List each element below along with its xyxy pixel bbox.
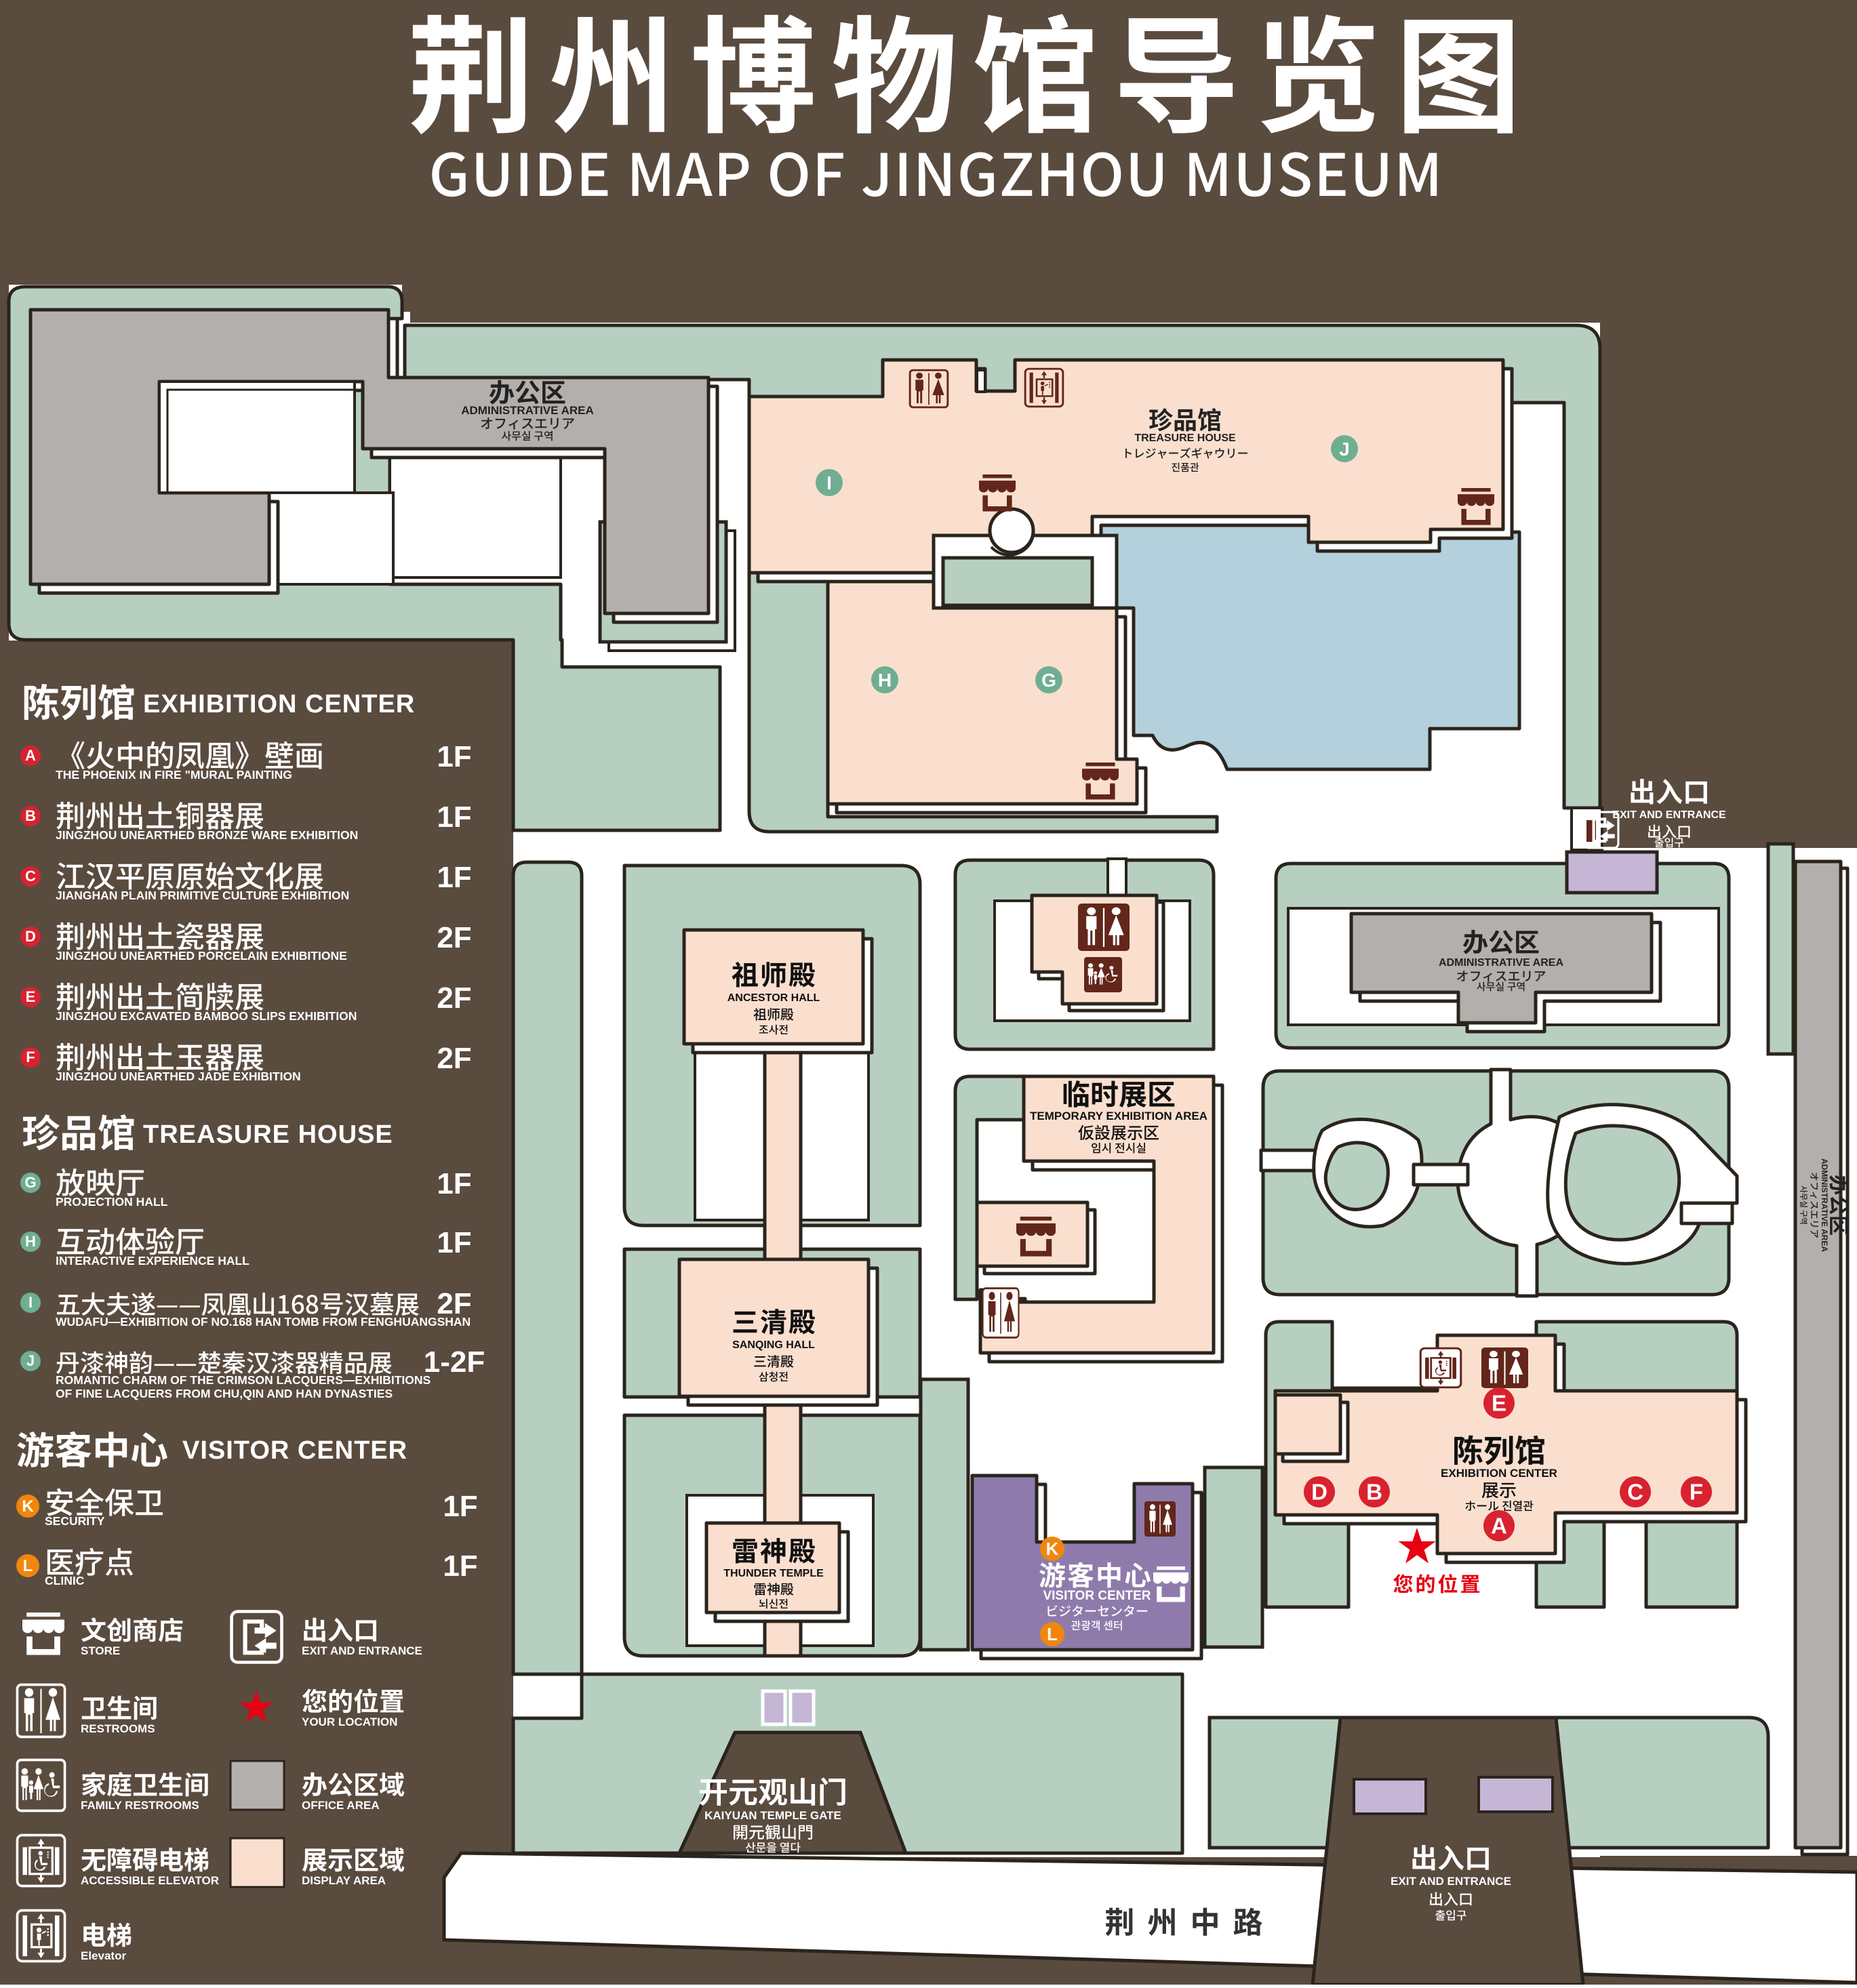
svg-text:1F: 1F bbox=[437, 861, 471, 894]
svg-text:VISITOR CENTER: VISITOR CENTER bbox=[182, 1436, 407, 1465]
svg-text:F: F bbox=[26, 1049, 35, 1066]
svg-text:F: F bbox=[1690, 1480, 1703, 1505]
svg-text:1F: 1F bbox=[437, 1226, 471, 1259]
svg-text:ADMINISTRATIVE AREA: ADMINISTRATIVE AREA bbox=[1820, 1158, 1829, 1252]
svg-text:JINGZHOU UNEARTHED JADE EXHIBI: JINGZHOU UNEARTHED JADE EXHIBITION bbox=[56, 1070, 301, 1083]
svg-text:H: H bbox=[25, 1233, 36, 1250]
svg-text:FAMILY RESTROOMS: FAMILY RESTROOMS bbox=[81, 1799, 199, 1812]
svg-text:THE PHOENIX IN FIRE "MURAL PAI: THE PHOENIX IN FIRE "MURAL PAINTING bbox=[56, 768, 292, 782]
svg-text:ACCESSIBLE ELEVATOR: ACCESSIBLE ELEVATOR bbox=[81, 1874, 219, 1887]
svg-text:SECURITY: SECURITY bbox=[45, 1514, 105, 1528]
svg-text:L: L bbox=[23, 1557, 33, 1575]
svg-text:A: A bbox=[1491, 1514, 1507, 1539]
svg-text:K: K bbox=[22, 1497, 34, 1516]
svg-text:2F: 2F bbox=[437, 1287, 471, 1320]
svg-text:ROMANTIC CHARM OF THE CRIMSON: ROMANTIC CHARM OF THE CRIMSON LACQUERS—E… bbox=[56, 1373, 431, 1387]
svg-text:J: J bbox=[1339, 439, 1350, 460]
svg-text:L: L bbox=[1047, 1624, 1058, 1644]
svg-text:YOUR LOCATION: YOUR LOCATION bbox=[302, 1716, 397, 1728]
svg-text:G: G bbox=[1041, 670, 1056, 691]
svg-text:B: B bbox=[1366, 1480, 1382, 1505]
svg-text:Elevator: Elevator bbox=[81, 1949, 126, 1962]
svg-text:EXIT AND ENTRANCE: EXIT AND ENTRANCE bbox=[1612, 809, 1726, 821]
svg-text:VISITOR CENTER: VISITOR CENTER bbox=[1043, 1589, 1151, 1603]
svg-text:H: H bbox=[878, 670, 892, 691]
svg-text:SANQING HALL: SANQING HALL bbox=[732, 1339, 815, 1351]
svg-text:I: I bbox=[826, 472, 832, 493]
svg-text:ADMINISTRATIVE AREA: ADMINISTRATIVE AREA bbox=[1439, 957, 1563, 969]
svg-text:JINGZHOU UNEARTHED PORCELAIN E: JINGZHOU UNEARTHED PORCELAIN EXHIBITIONE bbox=[56, 949, 347, 962]
svg-text:K: K bbox=[1046, 1539, 1059, 1559]
svg-text:EXIT AND ENTRANCE: EXIT AND ENTRANCE bbox=[302, 1644, 422, 1657]
svg-text:E: E bbox=[1492, 1391, 1506, 1416]
svg-text:1F: 1F bbox=[443, 1549, 477, 1583]
svg-text:J: J bbox=[26, 1352, 35, 1369]
svg-text:EXHIBITION CENTER: EXHIBITION CENTER bbox=[1441, 1467, 1557, 1480]
svg-text:INTERACTIVE EXPERIENCE HALL: INTERACTIVE EXPERIENCE HALL bbox=[56, 1254, 249, 1267]
svg-text:I: I bbox=[28, 1294, 33, 1311]
svg-text:TEMPORARY EXHIBITION AREA: TEMPORARY EXHIBITION AREA bbox=[1030, 1110, 1207, 1122]
svg-text:KAIYUAN TEMPLE GATE: KAIYUAN TEMPLE GATE bbox=[704, 1809, 841, 1822]
svg-text:B: B bbox=[25, 807, 36, 824]
svg-text:JIANGHAN PLAIN PRIMITIVE CULTU: JIANGHAN PLAIN PRIMITIVE CULTURE EXHIBIT… bbox=[56, 889, 349, 902]
svg-text:A: A bbox=[25, 747, 36, 764]
svg-text:G: G bbox=[24, 1174, 36, 1191]
svg-text:JINGZHOU EXCAVATED BAMBOO SLIP: JINGZHOU EXCAVATED BAMBOO SLIPS EXHIBITI… bbox=[56, 1009, 357, 1023]
svg-text:DISPLAY AREA: DISPLAY AREA bbox=[302, 1874, 386, 1887]
svg-text:JINGZHOU UNEARTHED BRONZE WARE: JINGZHOU UNEARTHED BRONZE WARE EXHIBITIO… bbox=[56, 828, 358, 842]
svg-text:1F: 1F bbox=[437, 800, 471, 834]
svg-text:PROJECTION HALL: PROJECTION HALL bbox=[56, 1195, 168, 1209]
svg-text:1F: 1F bbox=[437, 1167, 471, 1200]
svg-text:ADMINISTRATIVE AREA: ADMINISTRATIVE AREA bbox=[461, 404, 594, 417]
svg-text:1F: 1F bbox=[437, 740, 471, 773]
svg-text:2F: 2F bbox=[437, 1042, 471, 1075]
svg-text:D: D bbox=[1311, 1480, 1327, 1505]
svg-text:OF FINE LACQUERS FROM CHU,QIN: OF FINE LACQUERS FROM CHU,QIN AND HAN DY… bbox=[56, 1387, 393, 1400]
svg-text:THUNDER TEMPLE: THUNDER TEMPLE bbox=[723, 1568, 824, 1579]
svg-text:C: C bbox=[1627, 1480, 1643, 1505]
svg-text:TREASURE HOUSE: TREASURE HOUSE bbox=[143, 1120, 393, 1149]
svg-text:ANCESTOR HALL: ANCESTOR HALL bbox=[727, 992, 820, 1004]
svg-text:EXIT AND ENTRANCE: EXIT AND ENTRANCE bbox=[1391, 1875, 1511, 1888]
svg-text:TREASURE HOUSE: TREASURE HOUSE bbox=[1134, 432, 1236, 444]
svg-text:1F: 1F bbox=[443, 1490, 477, 1523]
svg-text:CLINIC: CLINIC bbox=[45, 1574, 85, 1587]
svg-text:OFFICE AREA: OFFICE AREA bbox=[302, 1799, 380, 1812]
svg-text:2F: 2F bbox=[437, 981, 471, 1015]
svg-text:1-2F: 1-2F bbox=[424, 1345, 485, 1379]
svg-text:E: E bbox=[26, 988, 36, 1005]
svg-text:RESTROOMS: RESTROOMS bbox=[81, 1722, 155, 1735]
svg-text:STORE: STORE bbox=[81, 1644, 120, 1657]
svg-text:D: D bbox=[25, 928, 36, 945]
svg-text:C: C bbox=[25, 868, 36, 885]
svg-text:WUDAFU—EXHIBITION OF NO.168 HA: WUDAFU—EXHIBITION OF NO.168 HAN TOMB FRO… bbox=[56, 1315, 471, 1328]
svg-text:2F: 2F bbox=[437, 921, 471, 954]
svg-text:EXHIBITION CENTER: EXHIBITION CENTER bbox=[143, 690, 415, 718]
